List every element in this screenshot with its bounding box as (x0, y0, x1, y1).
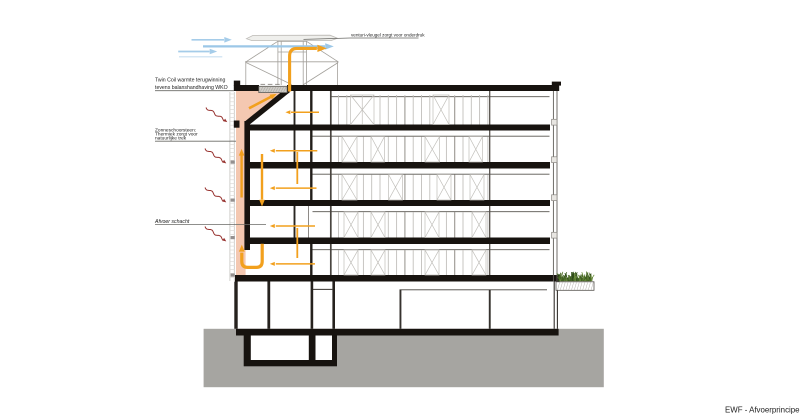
svg-text:natuurlijke trek: natuurlijke trek (155, 136, 187, 142)
svg-text:EWF - Afvoerprincipe: EWF - Afvoerprincipe (725, 405, 800, 414)
svg-text:venturi-vleugel zorgt voor ond: venturi-vleugel zorgt voor onderdruk (351, 32, 425, 37)
svg-text:tevens balanshandhaving WKO: tevens balanshandhaving WKO (155, 85, 228, 91)
svg-text:Twin Coil warmte terugwinning: Twin Coil warmte terugwinning (155, 78, 225, 84)
